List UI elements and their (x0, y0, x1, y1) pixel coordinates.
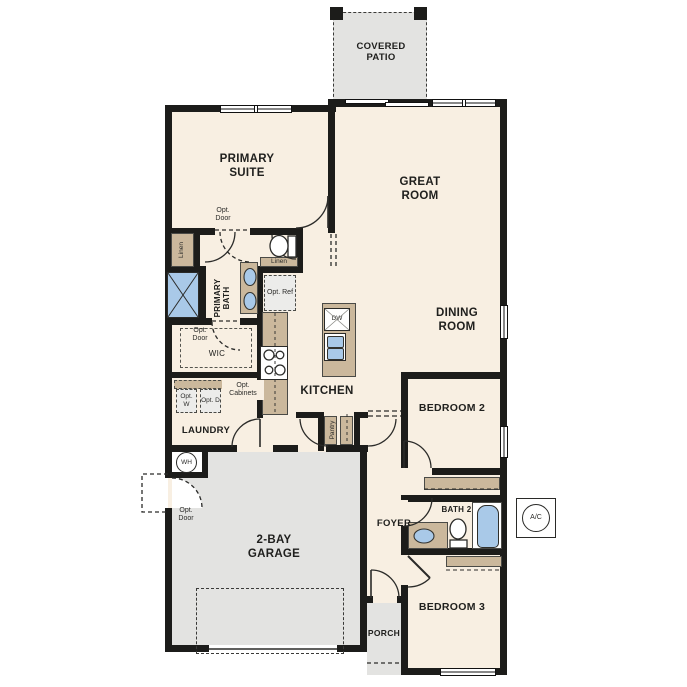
great-room-label: GREAT ROOM (390, 173, 450, 207)
primary-bath-label: PRIMARY BATH (209, 275, 235, 321)
porch-floor (367, 603, 401, 675)
water-heater-label: WH (181, 459, 192, 467)
below-garage-mask (165, 652, 367, 687)
sink-basin (327, 348, 344, 360)
wall (240, 318, 264, 325)
opt-door-label: Opt. Door (208, 205, 238, 225)
wall (258, 266, 302, 273)
garage-label: 2-BAY GARAGE (239, 532, 309, 564)
opt-cabinets-label: Opt. Cabinets (222, 380, 264, 400)
porch-label: PORCH (362, 627, 406, 639)
dishwasher-label: DW (324, 312, 350, 326)
sliding-door (385, 102, 429, 107)
opt-dryer-label: Opt. D (201, 391, 220, 411)
opt-washer-label: Opt. W (177, 391, 196, 411)
pantry-label: Pantry (328, 414, 338, 446)
wall (401, 495, 408, 500)
opt-door-stoop (142, 474, 168, 512)
wall (250, 228, 296, 235)
dining-room-label: DINING ROOM (427, 304, 487, 338)
wall (354, 412, 368, 418)
window (500, 426, 508, 458)
ac-unit-circle: A/C (522, 504, 550, 532)
bath2-label: BATH 2 (440, 499, 473, 521)
ac-unit-label: A/C (530, 514, 542, 522)
sliding-door (345, 99, 389, 104)
primary-vanity (240, 262, 258, 314)
pantry-shelf (340, 416, 353, 445)
opt-door-label: Opt. Door (185, 325, 215, 345)
laundry-label: LAUNDRY (171, 424, 241, 437)
garage-door-outline (196, 588, 344, 654)
hall-closet (424, 477, 500, 490)
bedroom2-label: BEDROOM 2 (402, 401, 502, 415)
wall (328, 99, 335, 233)
window (440, 668, 496, 676)
water-heater: WH (176, 452, 197, 473)
bedroom3-label: BEDROOM 3 (402, 600, 502, 614)
opt-door-label: Opt. Door (171, 505, 201, 525)
wall (367, 596, 373, 603)
bedroom3-closet (446, 556, 502, 567)
wall (401, 372, 408, 468)
covered-patio-label: COVERED PATIO (348, 36, 414, 68)
shower (167, 272, 199, 318)
foyer-label: FOYER (369, 517, 419, 530)
wall (432, 468, 507, 475)
sink-basin (327, 336, 344, 348)
wall (165, 508, 172, 652)
wall (401, 372, 507, 379)
window (432, 99, 496, 107)
linen-label: Linen (260, 258, 298, 266)
bathtub-basin (477, 505, 499, 548)
opt-ref-label: Opt. Ref (266, 278, 294, 308)
wic-label: WIC (197, 348, 237, 360)
patio-post (414, 7, 427, 20)
linen-label: Linen (177, 235, 187, 265)
floor-plan-canvas: COVERED PATIO (0, 0, 687, 687)
wall (165, 372, 260, 378)
wall (500, 99, 507, 675)
patio-post (330, 7, 343, 20)
window (220, 105, 292, 113)
wall (165, 445, 237, 452)
wall (199, 266, 206, 325)
cooktop (260, 346, 288, 380)
wall (165, 318, 212, 325)
window (500, 305, 508, 339)
kitchen-label: KITCHEN (287, 384, 367, 400)
wall (273, 445, 298, 452)
wall (401, 548, 507, 555)
primary-suite-label: PRIMARY SUITE (212, 150, 282, 184)
wall (360, 445, 367, 652)
